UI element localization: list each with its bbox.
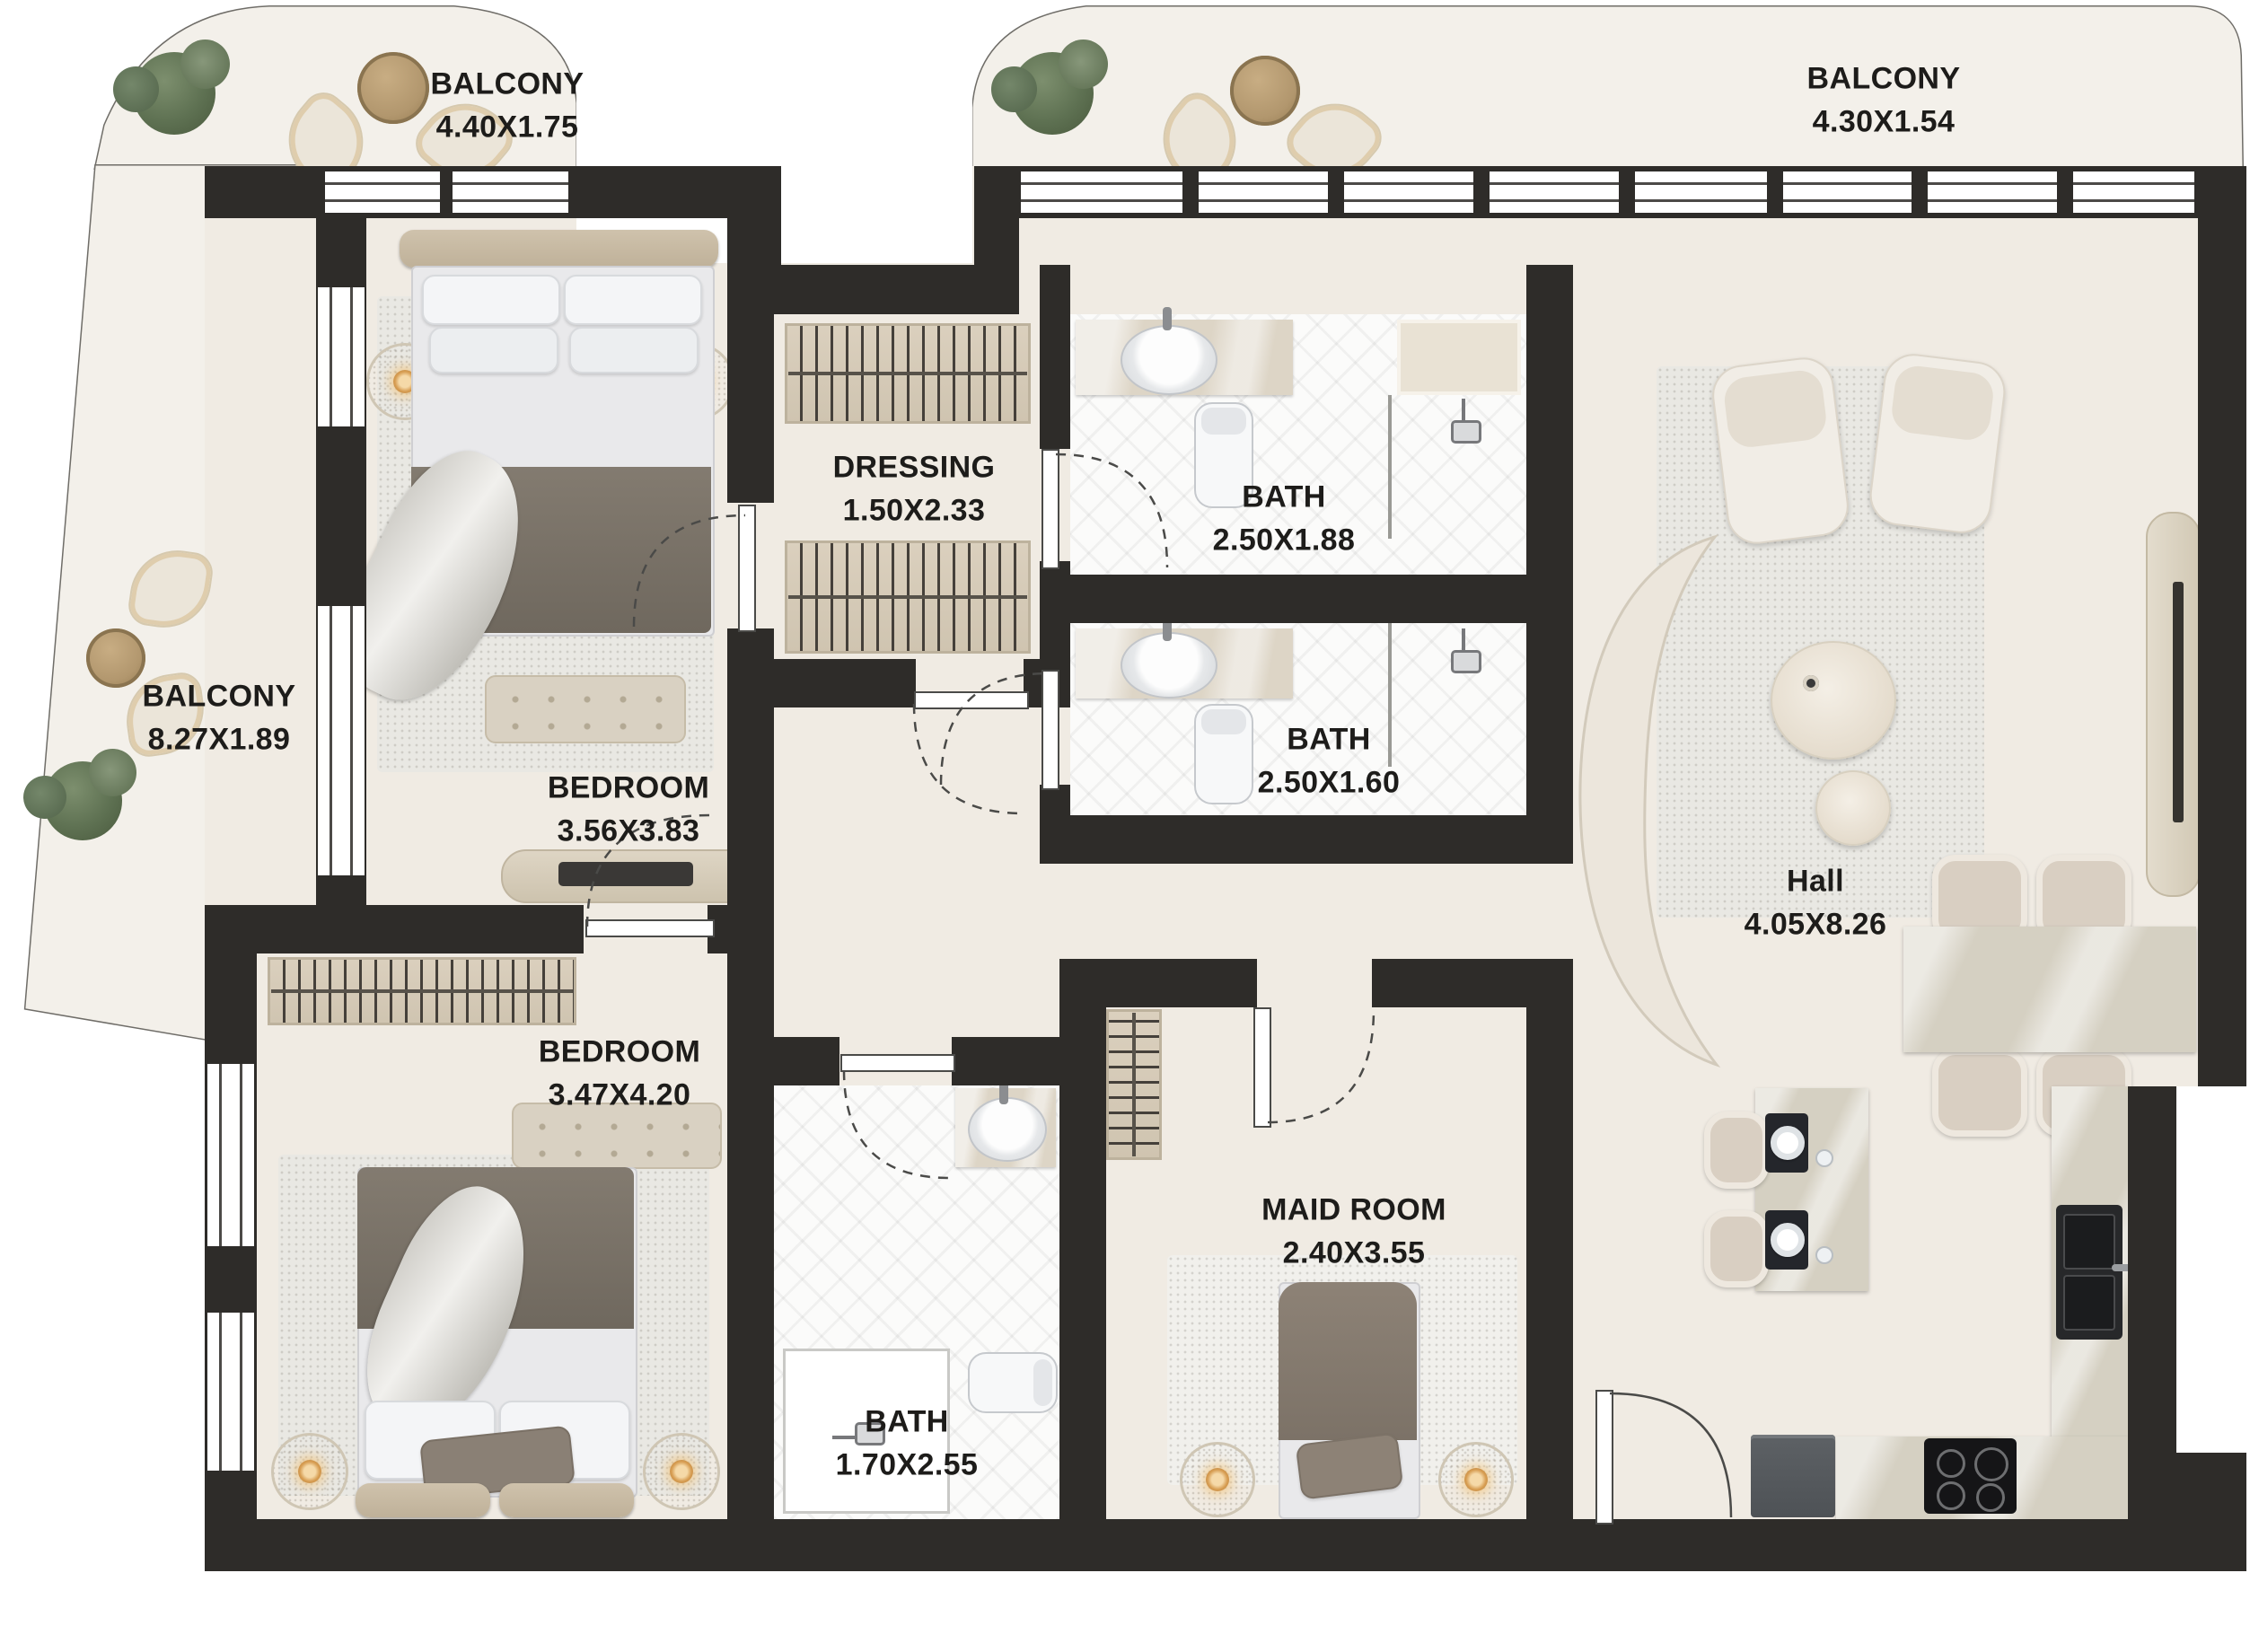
floor-plan: BALCONY 4.40X1.75 BALCONY 4.30X1.54 BALC…	[0, 0, 2250, 1652]
room-dims: 1.50X2.33	[833, 489, 996, 532]
room-label-balcony-top-right: BALCONY 4.30X1.54	[1807, 57, 1961, 145]
room-dims: 3.47X4.20	[539, 1074, 700, 1117]
room-label-bath-ensuite: BATH 2.50X1.88	[1213, 476, 1356, 563]
room-name: Hall	[1745, 860, 1887, 903]
room-dims: 4.05X8.26	[1745, 903, 1887, 946]
room-label-bedroom-bottom: BEDROOM 3.47X4.20	[539, 1031, 700, 1118]
room-name: BALCONY	[431, 63, 584, 106]
room-label-balcony-left: BALCONY 8.27X1.89	[143, 675, 296, 762]
room-name: BATH	[1258, 718, 1401, 761]
room-dims: 8.27X1.89	[143, 718, 296, 761]
room-name: BALCONY	[143, 675, 296, 718]
room-label-maid-room: MAID ROOM 2.40X3.55	[1261, 1189, 1446, 1276]
room-dims: 4.40X1.75	[431, 106, 584, 149]
room-dims: 2.50X1.60	[1258, 761, 1401, 804]
room-name: BEDROOM	[548, 767, 709, 810]
room-name: DRESSING	[833, 446, 996, 489]
room-name: MAID ROOM	[1261, 1189, 1446, 1232]
room-dims: 4.30X1.54	[1807, 101, 1961, 144]
room-label-bath-maid: BATH 1.70X2.55	[836, 1401, 979, 1488]
room-dims: 2.40X3.55	[1261, 1232, 1446, 1275]
room-dims: 1.70X2.55	[836, 1444, 979, 1487]
room-name: BEDROOM	[539, 1031, 700, 1074]
room-label-bath-shared: BATH 2.50X1.60	[1258, 718, 1401, 805]
room-dims: 3.56X3.83	[548, 810, 709, 853]
room-label-dressing: DRESSING 1.50X2.33	[833, 446, 996, 533]
room-name: BATH	[836, 1401, 979, 1444]
room-label-balcony-top-left: BALCONY 4.40X1.75	[431, 63, 584, 150]
door-swing-arcs	[0, 0, 2250, 1652]
room-name: BATH	[1213, 476, 1356, 519]
room-dims: 2.50X1.88	[1213, 519, 1356, 562]
room-label-hall: Hall 4.05X8.26	[1745, 860, 1887, 947]
room-name: BALCONY	[1807, 57, 1961, 101]
room-label-bedroom-top: BEDROOM 3.56X3.83	[548, 767, 709, 854]
